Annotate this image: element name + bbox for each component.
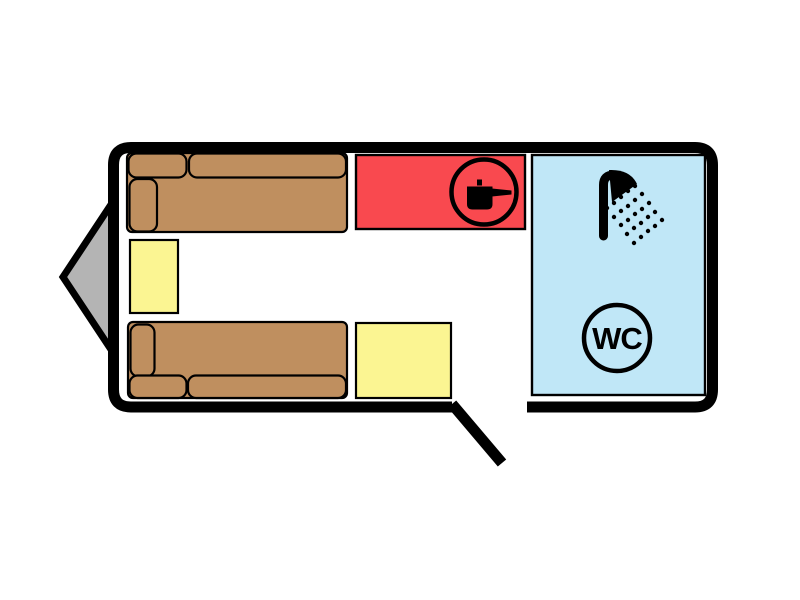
drawbar-triangle [63, 203, 112, 351]
pot-lid-knob [477, 180, 482, 186]
sofa-backrest-cushion [189, 154, 346, 178]
sofa-backrest-cushion [130, 376, 187, 399]
front-sofa [127, 153, 347, 232]
rear-sofa [128, 322, 347, 398]
sofa-backrest-cushion [188, 376, 346, 399]
sofa-armrest-cushion [131, 325, 155, 377]
floor-plan-canvas: WC [0, 0, 800, 600]
pot-body [467, 187, 493, 210]
side-table [130, 240, 178, 313]
sofa-armrest-cushion [130, 179, 158, 232]
kitchen-unit [356, 155, 525, 229]
wc-label: WC [592, 321, 642, 356]
sofa-backrest-cushion [129, 154, 187, 178]
bathroom: WC [532, 155, 705, 395]
entry-table [356, 323, 451, 398]
entry-door-open [452, 404, 502, 463]
